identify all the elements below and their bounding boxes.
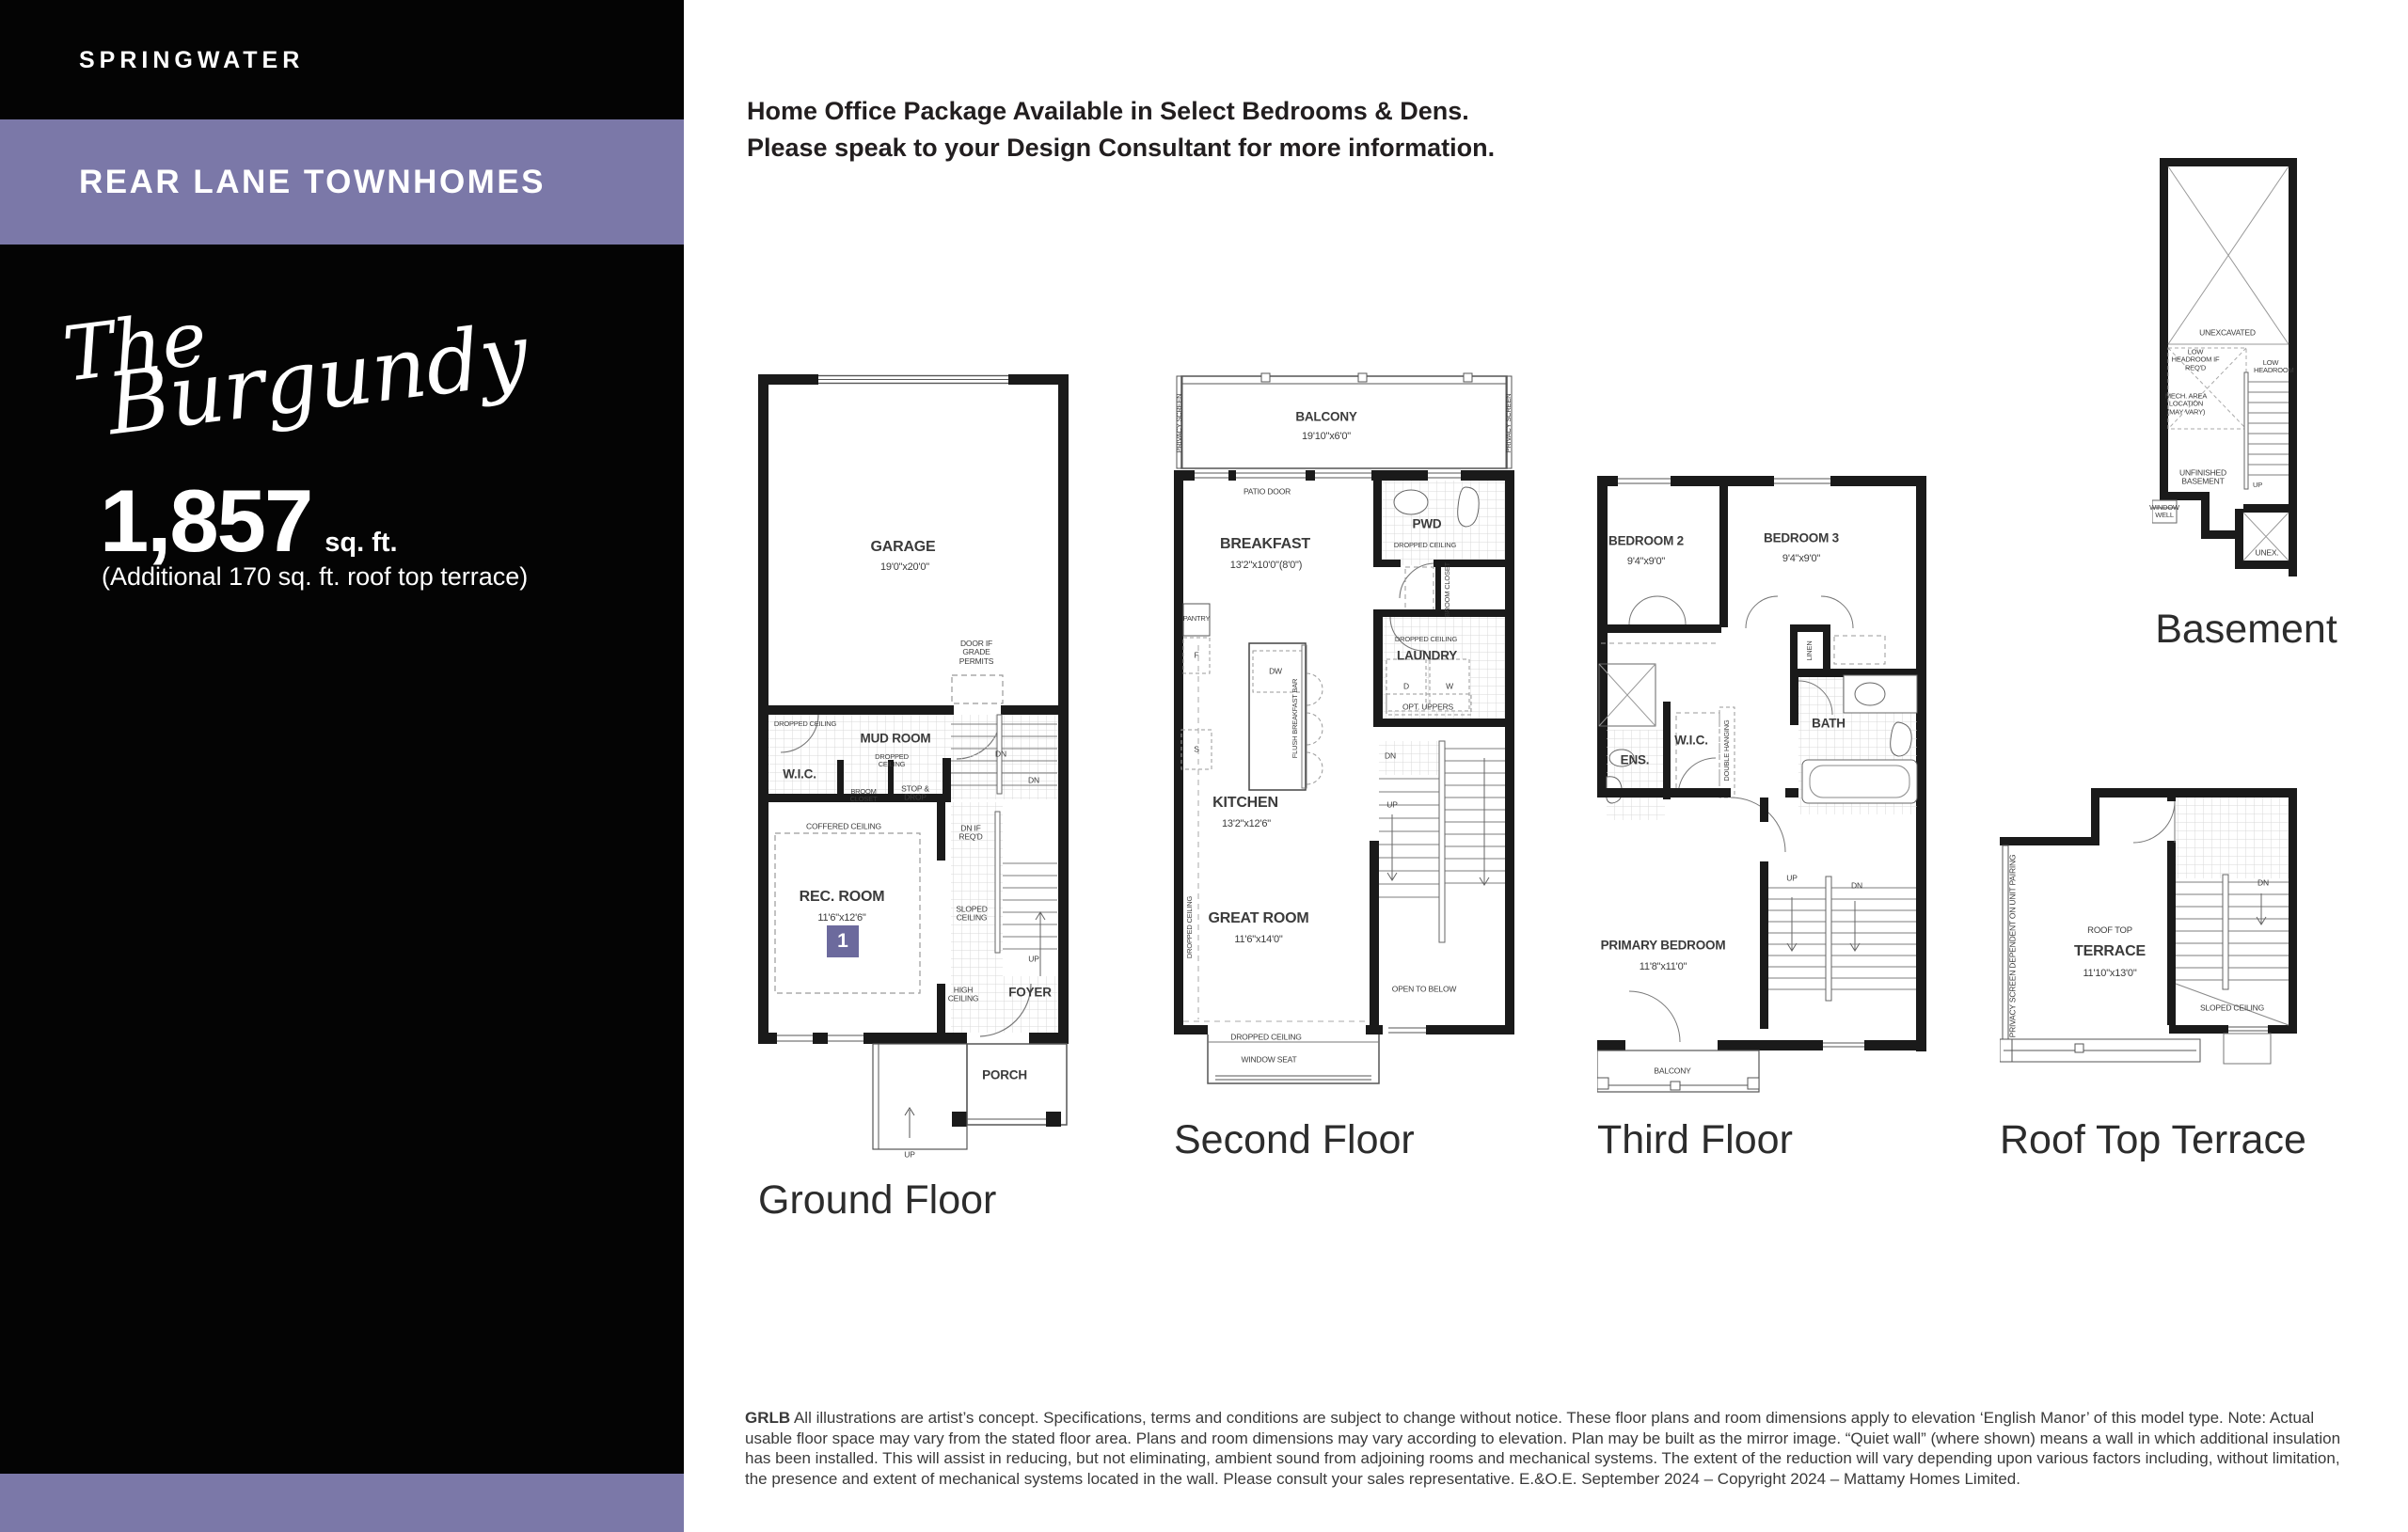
- room-label-bath: BATH: [1812, 718, 1846, 732]
- stair-label-dn-2: DN: [1028, 776, 1039, 784]
- room-label-pantry: PANTRY: [1183, 615, 1211, 623]
- note-unexcavated: UNEXCAVATED: [2199, 328, 2256, 337]
- room-label-rec-room: REC. ROOM: [800, 889, 885, 906]
- floor-name-third: Third Floor: [1597, 1117, 1793, 1163]
- note-privacy-screen-terrace: PRIVACY SCREEN DEPENDENT ON UNIT PAIRING: [2008, 855, 2017, 1038]
- stair-label-up-2f: UP: [1386, 800, 1397, 809]
- note-unex: UNEX.: [2256, 548, 2279, 557]
- floorplan-sheet: SPRINGWATER REAR LANE TOWNHOMES The Burg…: [0, 0, 2408, 1532]
- note-mech-area: MECH. AREA LOCATION (MAY VARY): [2162, 393, 2210, 417]
- dim-label-balcony: 19'10"x6'0": [1302, 431, 1351, 442]
- model-name: The Burgundy: [59, 262, 532, 453]
- room-label-pwd: PWD: [1413, 518, 1442, 532]
- room-label-stop-drop: STOP & DROP: [895, 785, 936, 803]
- room-label-balcony-3f: BALCONY: [1654, 1066, 1690, 1075]
- dim-label-breakfast: 13'2"x10'0"(8'0"): [1230, 560, 1302, 571]
- dim-label-primary-bedroom: 11'8"x11'0": [1640, 961, 1687, 972]
- dim-label-great-room: 11'6"x14'0": [1234, 934, 1282, 945]
- ground-floor-plan: GARAGE 19'0"x20'0" DOOR IF GRADE PERMITS…: [758, 374, 1069, 1174]
- dim-label-bedroom3: 9'4"x9'0": [1782, 553, 1820, 564]
- square-footage: 1,857 sq. ft.: [100, 470, 398, 572]
- stair-label-up-basement: UP: [2253, 482, 2262, 489]
- terrace-area-note: (Additional 170 sq. ft. roof top terrace…: [102, 562, 528, 592]
- note-window-seat: WINDOW SEAT: [1241, 1055, 1296, 1064]
- room-label-porch: PORCH: [982, 1069, 1027, 1083]
- appliance-label-stove: S: [1194, 745, 1198, 753]
- stair-label-dn: DN: [995, 750, 1006, 758]
- appliance-label-dishwasher: DW: [1269, 667, 1282, 675]
- collection-name: REAR LANE TOWNHOMES: [79, 164, 546, 201]
- dim-label-bedroom2: 9'4"x9'0": [1627, 556, 1665, 567]
- home-office-note-line2: Please speak to your Design Consultant f…: [747, 130, 1495, 166]
- collection-band: REAR LANE TOWNHOMES: [0, 119, 684, 245]
- room-label-balcony: BALCONY: [1295, 411, 1356, 425]
- room-label-foyer: FOYER: [1008, 987, 1052, 1001]
- stair-label-up-3f: UP: [1786, 874, 1797, 882]
- home-office-note: Home Office Package Available in Select …: [747, 93, 1495, 166]
- room-label-breakfast: BREAKFAST: [1220, 536, 1310, 553]
- room-label-primary-bedroom: PRIMARY BEDROOM: [1601, 940, 1726, 954]
- note-privacy-screen-left: PRIVACY SCREEN: [1176, 394, 1183, 453]
- note-sloped-ceiling-terrace: SLOPED CEILING: [2200, 1003, 2264, 1012]
- room-label-mud-room: MUD ROOM: [861, 733, 931, 747]
- room-label-garage: GARAGE: [870, 539, 935, 556]
- dim-label-garage: 19'0"x20'0": [880, 561, 929, 573]
- appliance-label-fridge: F: [1195, 651, 1199, 659]
- room-label-wic: W.I.C.: [783, 768, 816, 782]
- stair-label-dn-3f: DN: [1851, 881, 1862, 890]
- room-label-linen: LINEN: [1806, 640, 1814, 660]
- note-dropped-ceiling-great: DROPPED CEILING: [1186, 896, 1194, 958]
- square-footage-value: 1,857: [100, 470, 311, 572]
- room-label-broom-closet: BROOM CLOSET: [843, 788, 884, 804]
- room-label-bedroom3: BEDROOM 3: [1764, 532, 1839, 546]
- note-dropped-ceiling-wic: DROPPED CEILING: [774, 720, 836, 728]
- basement-plan: UNEXCAVATED LOW HEADROOM IF REQ'D LOW HE…: [2152, 158, 2354, 628]
- note-low-headroom: LOW HEADROOM: [2254, 359, 2288, 375]
- stair-label-dn-terrace: DN: [2257, 878, 2269, 887]
- room-label-bedroom2: BEDROOM 2: [1608, 535, 1684, 549]
- dim-label-kitchen: 13'2"x12'6": [1222, 818, 1271, 829]
- sidebar: SPRINGWATER REAR LANE TOWNHOMES The Burg…: [0, 0, 684, 1532]
- disclaimer-plan-code: GRLB: [745, 1409, 790, 1427]
- note-dropped-ceiling-seat: DROPPED CEILING: [1230, 1033, 1301, 1041]
- dim-label-rec-room: 11'6"x12'6": [817, 912, 865, 924]
- note-sloped-ceiling: SLOPED CEILING: [951, 906, 992, 924]
- disclaimer-text: All illustrations are artist’s concept. …: [745, 1409, 2340, 1488]
- third-floor-plan: BEDROOM 2 9'4"x9'0" BEDROOM 3 9'4"x9'0" …: [1597, 476, 1926, 1098]
- roof-terrace-drawing: [2000, 788, 2357, 1070]
- note-opt-uppers: OPT. UPPERS: [1402, 703, 1453, 711]
- room-label-laundry: LAUNDRY: [1397, 650, 1457, 664]
- stair-label-dn-2f: DN: [1385, 751, 1396, 760]
- room-label-unfinished-basement: UNFINISHED BASEMENT: [2172, 469, 2234, 487]
- note-high-ceiling: HIGH CEILING: [943, 987, 984, 1004]
- note-low-headroom-reqd: LOW HEADROOM IF REQ'D: [2167, 349, 2224, 372]
- room-label-wic-3f: W.I.C.: [1674, 734, 1708, 749]
- third-floor-drawing: [1597, 476, 1926, 1098]
- stair-label-up: UP: [1028, 955, 1038, 963]
- floor-name-ground: Ground Floor: [758, 1177, 996, 1224]
- square-footage-unit: sq. ft.: [325, 528, 397, 559]
- floor-name-basement: Basement: [2152, 607, 2340, 653]
- appliance-label-washer: W: [1446, 682, 1453, 690]
- room-label-terrace: TERRACE: [2074, 943, 2146, 960]
- note-dropped-ceiling-pwd: DROPPED CEILING: [1394, 542, 1456, 549]
- home-office-note-line1: Home Office Package Available in Select …: [747, 93, 1495, 130]
- room-label-ensuite: ENS.: [1621, 754, 1650, 768]
- sidebar-bottom-accent: [0, 1474, 684, 1532]
- home-office-option-badge: 1: [827, 925, 859, 957]
- note-window-well: WINDOW WELL: [2147, 504, 2181, 520]
- second-floor-plan: PRIVACY SCREEN PRIVACY SCREEN BALCONY 19…: [1174, 372, 1514, 1125]
- note-dropped-ceiling-laundry: DROPPED CEILING: [1395, 636, 1457, 643]
- room-label-roof-top: ROOF TOP: [2087, 926, 2132, 936]
- note-flush-breakfast-bar: FLUSH BREAKFAST BAR: [1291, 679, 1299, 758]
- floor-name-terrace: Roof Top Terrace: [2000, 1117, 2306, 1163]
- floor-name-second: Second Floor: [1174, 1117, 1415, 1163]
- note-dn-if-reqd: DN IF REQ'D: [950, 825, 991, 843]
- note-open-to-below: OPEN TO BELOW: [1392, 985, 1456, 993]
- note-patio-door: PATIO DOOR: [1244, 487, 1291, 496]
- dim-label-terrace: 11'10"x13'0": [2083, 968, 2136, 979]
- room-label-great-room: GREAT ROOM: [1208, 910, 1308, 927]
- note-double-hanging: DOUBLE HANGING: [1723, 719, 1731, 781]
- note-dropped-ceiling-mud: DROPPED CEILING: [867, 753, 916, 769]
- note-privacy-screen-right: PRIVACY SCREEN: [1505, 394, 1513, 453]
- legal-disclaimer: GRLB All illustrations are artist’s conc…: [745, 1408, 2359, 1489]
- stair-label-up-porch: UP: [904, 1150, 914, 1159]
- note-door-if-grade: DOOR IF GRADE PERMITS: [948, 640, 1005, 666]
- room-label-broom-closet-2f: BROOM CLOSET: [1444, 562, 1451, 617]
- note-coffered-ceiling: COFFERED CEILING: [806, 822, 881, 830]
- appliance-label-dryer: D: [1403, 682, 1409, 690]
- roof-terrace-plan: PRIVACY SCREEN DEPENDENT ON UNIT PAIRING…: [2000, 788, 2357, 1070]
- room-label-kitchen: KITCHEN: [1212, 795, 1278, 812]
- second-floor-drawing: [1174, 372, 1514, 1125]
- community-name: SPRINGWATER: [79, 47, 304, 74]
